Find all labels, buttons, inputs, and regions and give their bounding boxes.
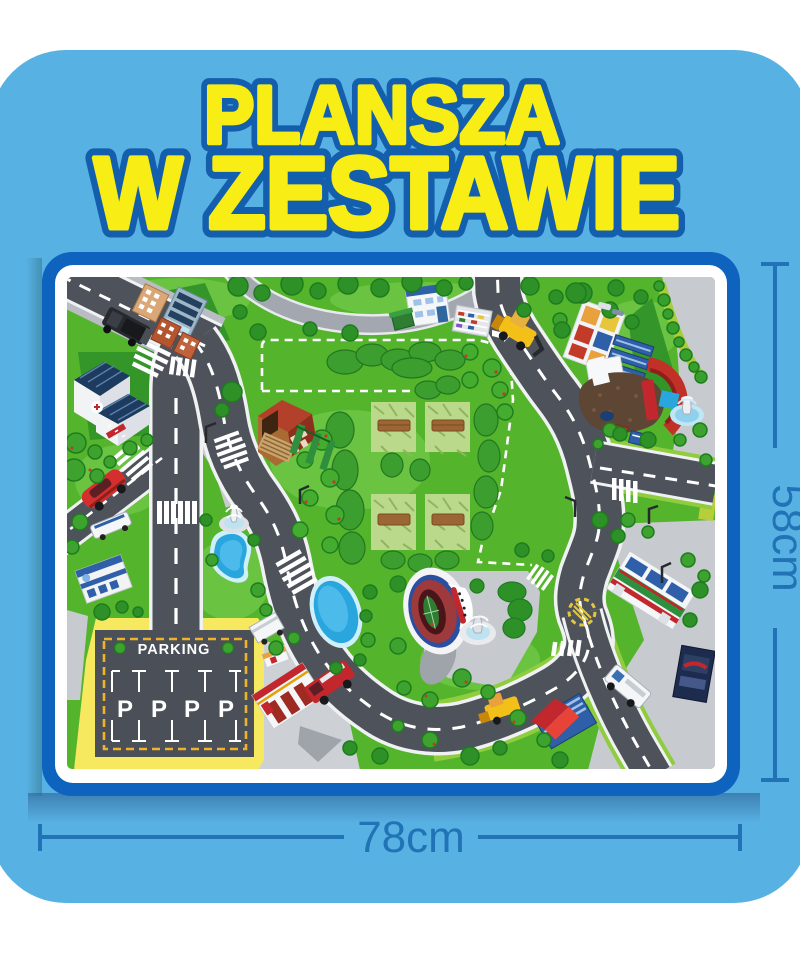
svg-text:P: P — [117, 696, 133, 723]
svg-text:W ZESTAWIE: W ZESTAWIE — [94, 136, 680, 250]
svg-text:P: P — [151, 696, 167, 723]
svg-text:P: P — [218, 696, 234, 723]
svg-text:P: P — [184, 696, 200, 723]
svg-text:58cm: 58cm — [763, 484, 800, 592]
svg-text:78cm: 78cm — [357, 813, 465, 862]
svg-text:PARKING: PARKING — [138, 642, 211, 658]
